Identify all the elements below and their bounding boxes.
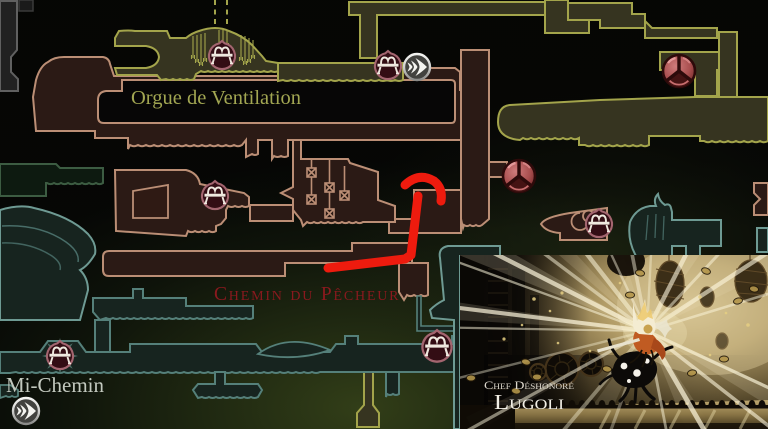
svg-text:Lugoli: Lugoli xyxy=(494,390,564,414)
svg-text:Mi-Chemin: Mi-Chemin xyxy=(6,373,104,397)
svg-text:Chemin du Pêcheur: Chemin du Pêcheur xyxy=(214,284,400,305)
svg-text:Orgue de Ventilation: Orgue de Ventilation xyxy=(131,87,301,109)
